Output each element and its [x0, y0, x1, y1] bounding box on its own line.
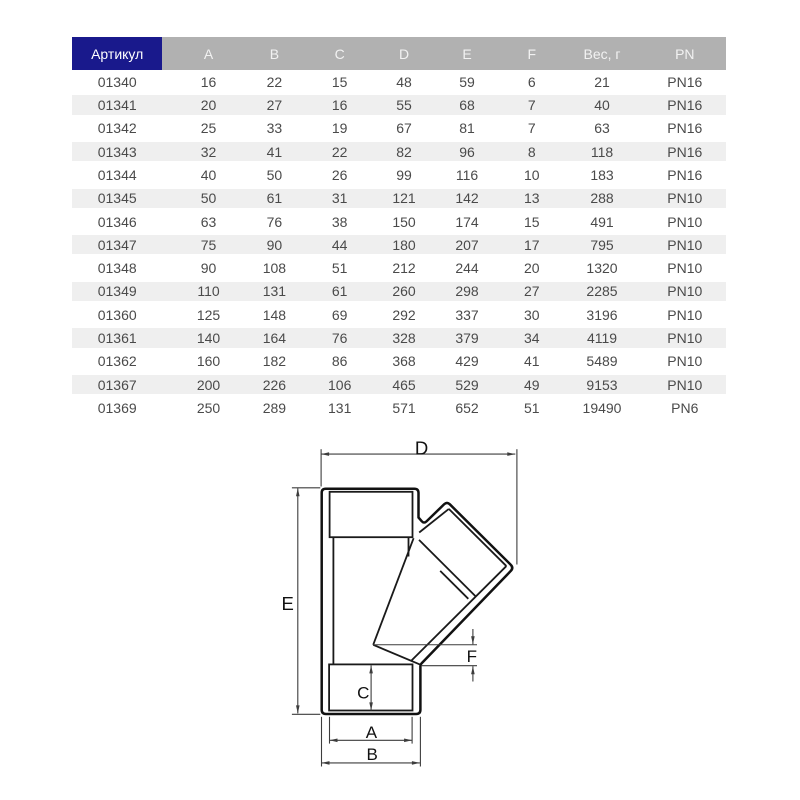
svg-text:D: D [415, 438, 428, 459]
svg-text:E: E [281, 593, 293, 614]
svg-text:C: C [357, 683, 369, 702]
svg-text:B: B [367, 745, 378, 764]
svg-text:F: F [467, 647, 477, 666]
svg-text:A: A [366, 723, 378, 742]
